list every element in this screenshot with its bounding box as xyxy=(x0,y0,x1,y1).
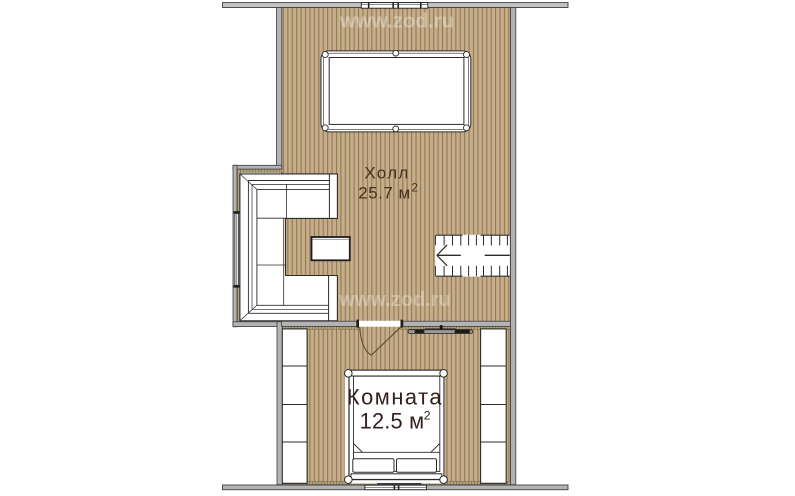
svg-text:2: 2 xyxy=(424,408,431,422)
svg-text:25.7 м: 25.7 м xyxy=(358,183,411,202)
svg-text:12.5 м: 12.5 м xyxy=(360,409,425,434)
svg-text:2: 2 xyxy=(412,183,418,195)
svg-text:Холл: Холл xyxy=(364,164,409,183)
svg-text:www.zod.ru: www.zod.ru xyxy=(339,10,454,33)
svg-text:Комната: Комната xyxy=(347,385,443,410)
svg-text:www.zod.ru: www.zod.ru xyxy=(338,289,450,311)
